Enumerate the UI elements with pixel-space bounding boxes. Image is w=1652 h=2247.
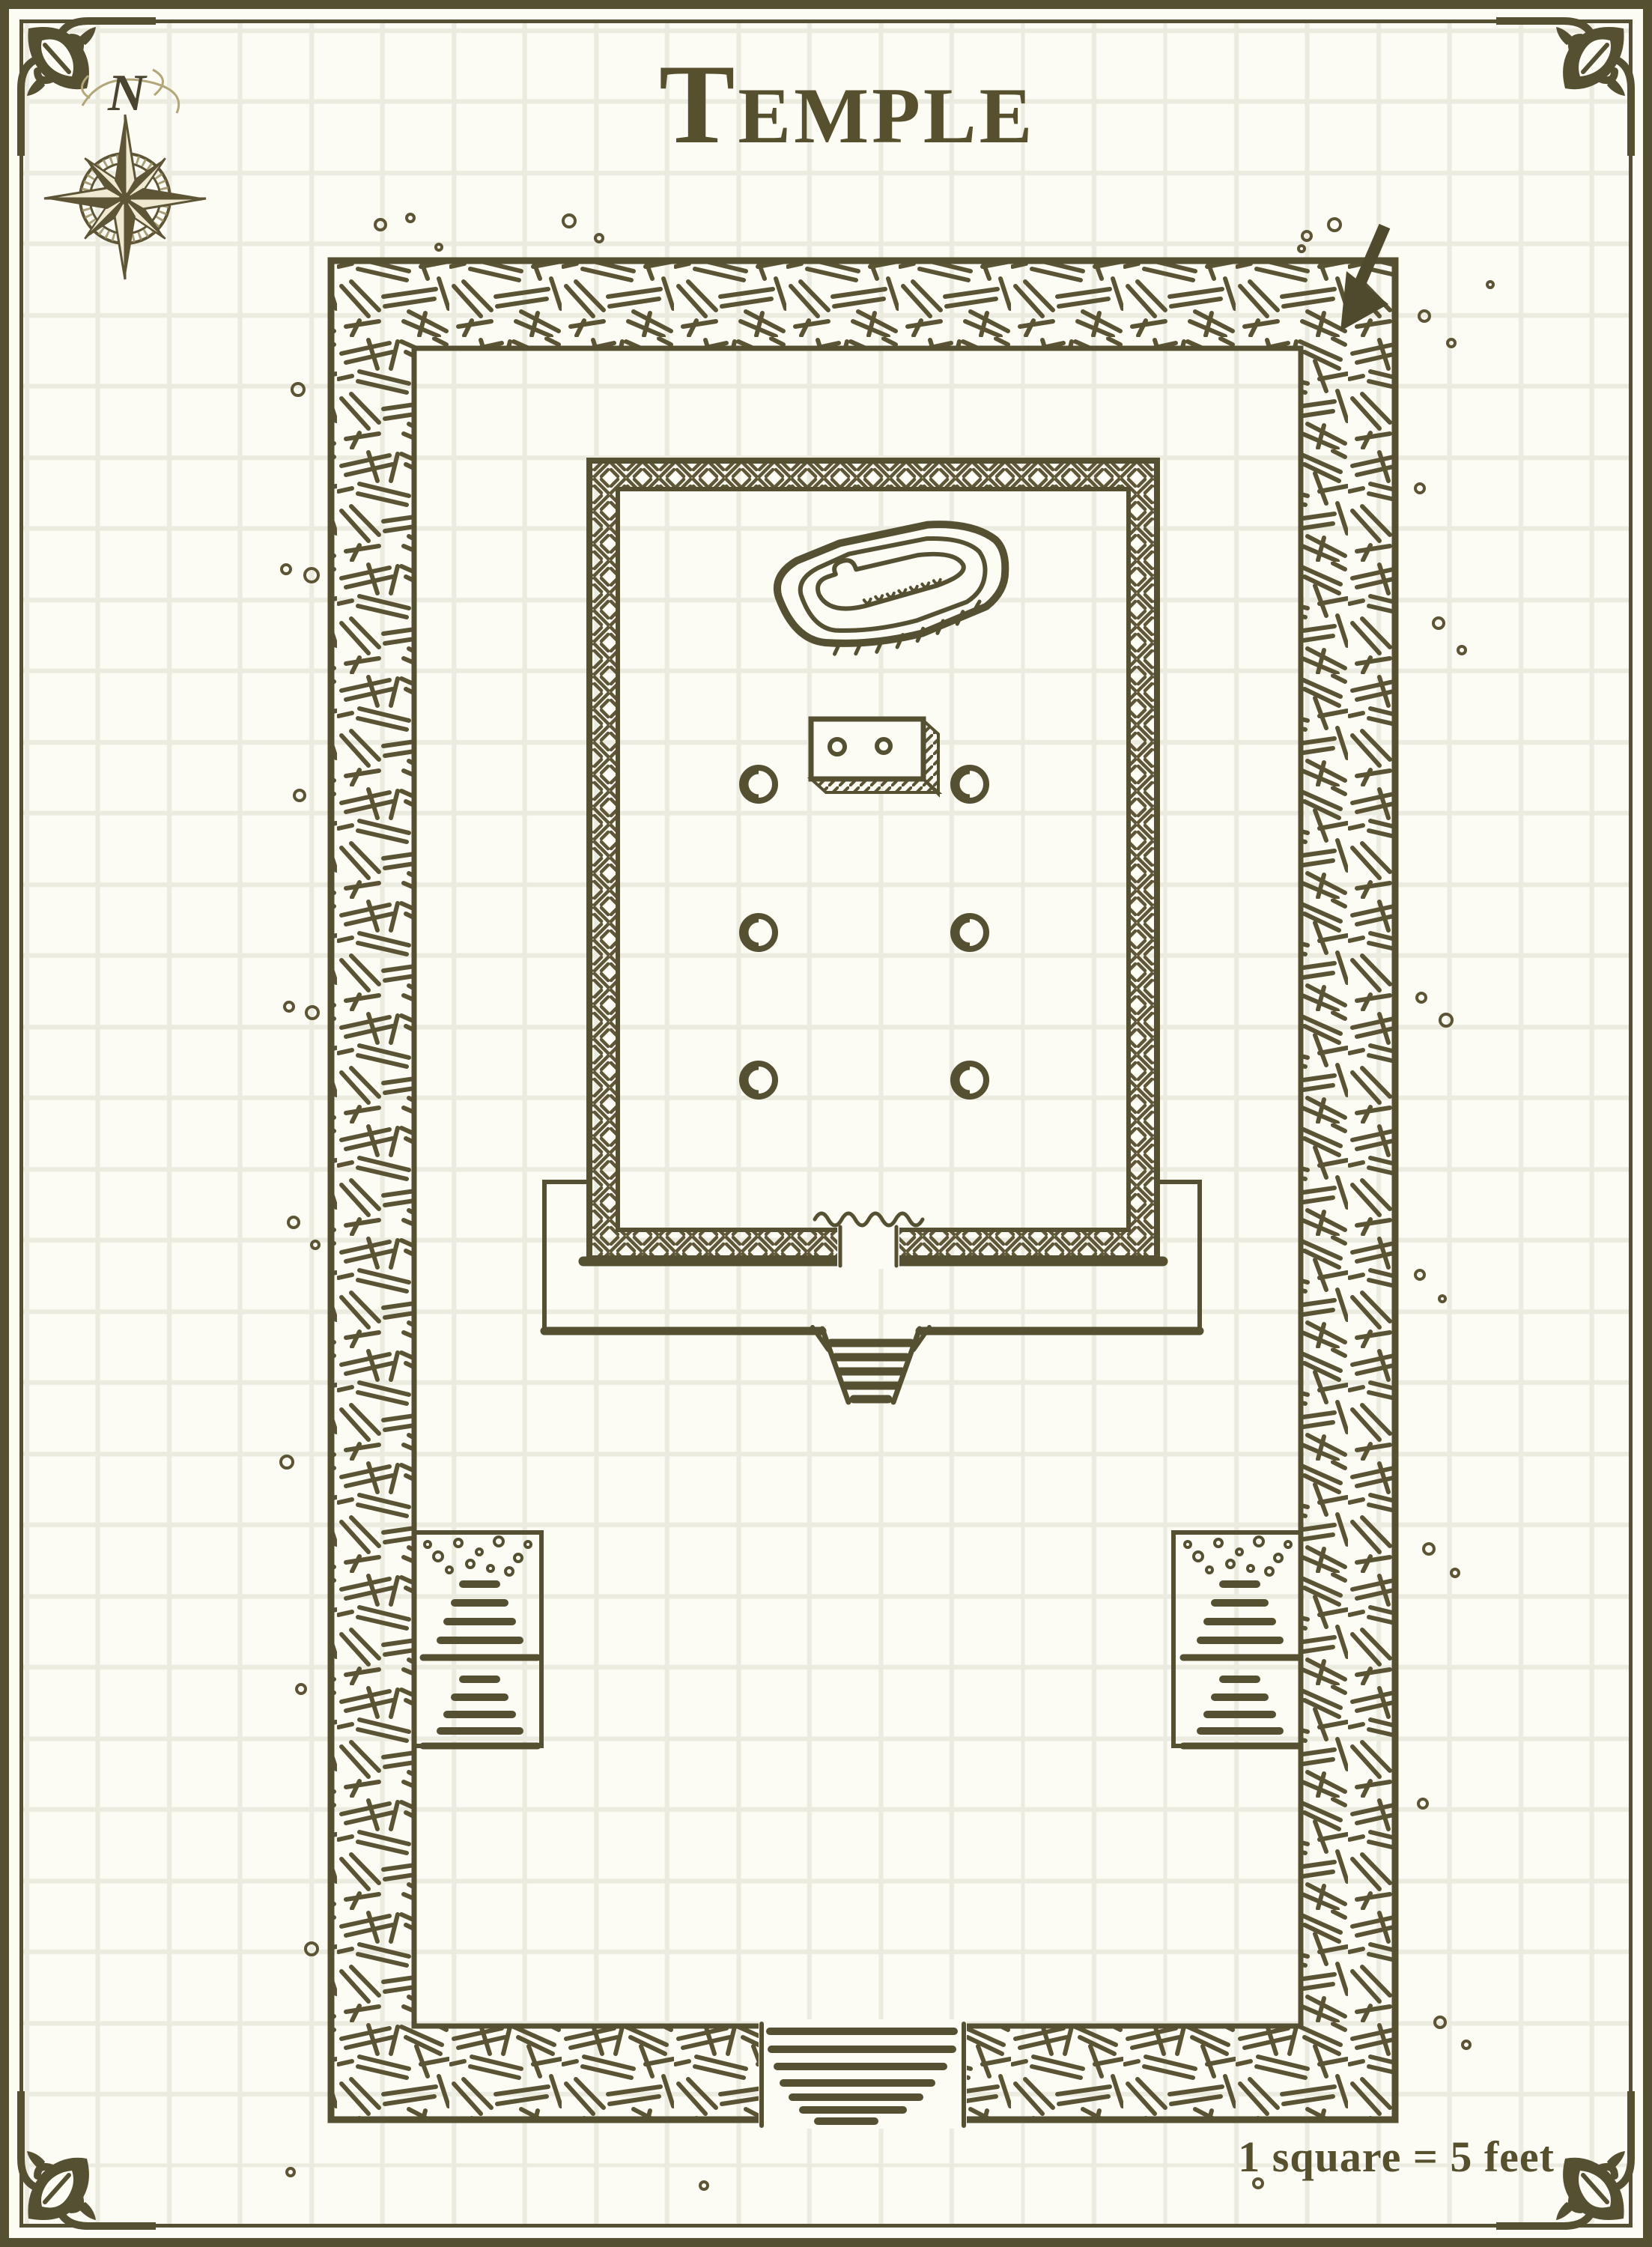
scale-note: 1 square = 5 feet — [1238, 2132, 1555, 2182]
altar-icon — [811, 719, 938, 794]
dais-steps — [813, 1327, 929, 1402]
pillars — [742, 768, 986, 1097]
map-page: N — [0, 0, 1652, 2247]
candle-icon — [830, 739, 845, 754]
stair-rubble — [425, 1537, 531, 1575]
pillar-icon — [953, 1064, 986, 1097]
pillar-icon — [742, 768, 775, 801]
pillar-icon — [742, 916, 775, 949]
sarcophagus-icon — [771, 514, 1015, 666]
pillar-icon — [953, 916, 986, 949]
pillar-icon — [953, 768, 986, 801]
left-staircase — [414, 1532, 541, 1746]
temple-map — [0, 0, 1652, 2247]
right-staircase — [1173, 1532, 1301, 1746]
pillar-icon — [742, 1064, 775, 1097]
stair-rubble — [1185, 1537, 1291, 1575]
candle-icon — [877, 739, 890, 753]
